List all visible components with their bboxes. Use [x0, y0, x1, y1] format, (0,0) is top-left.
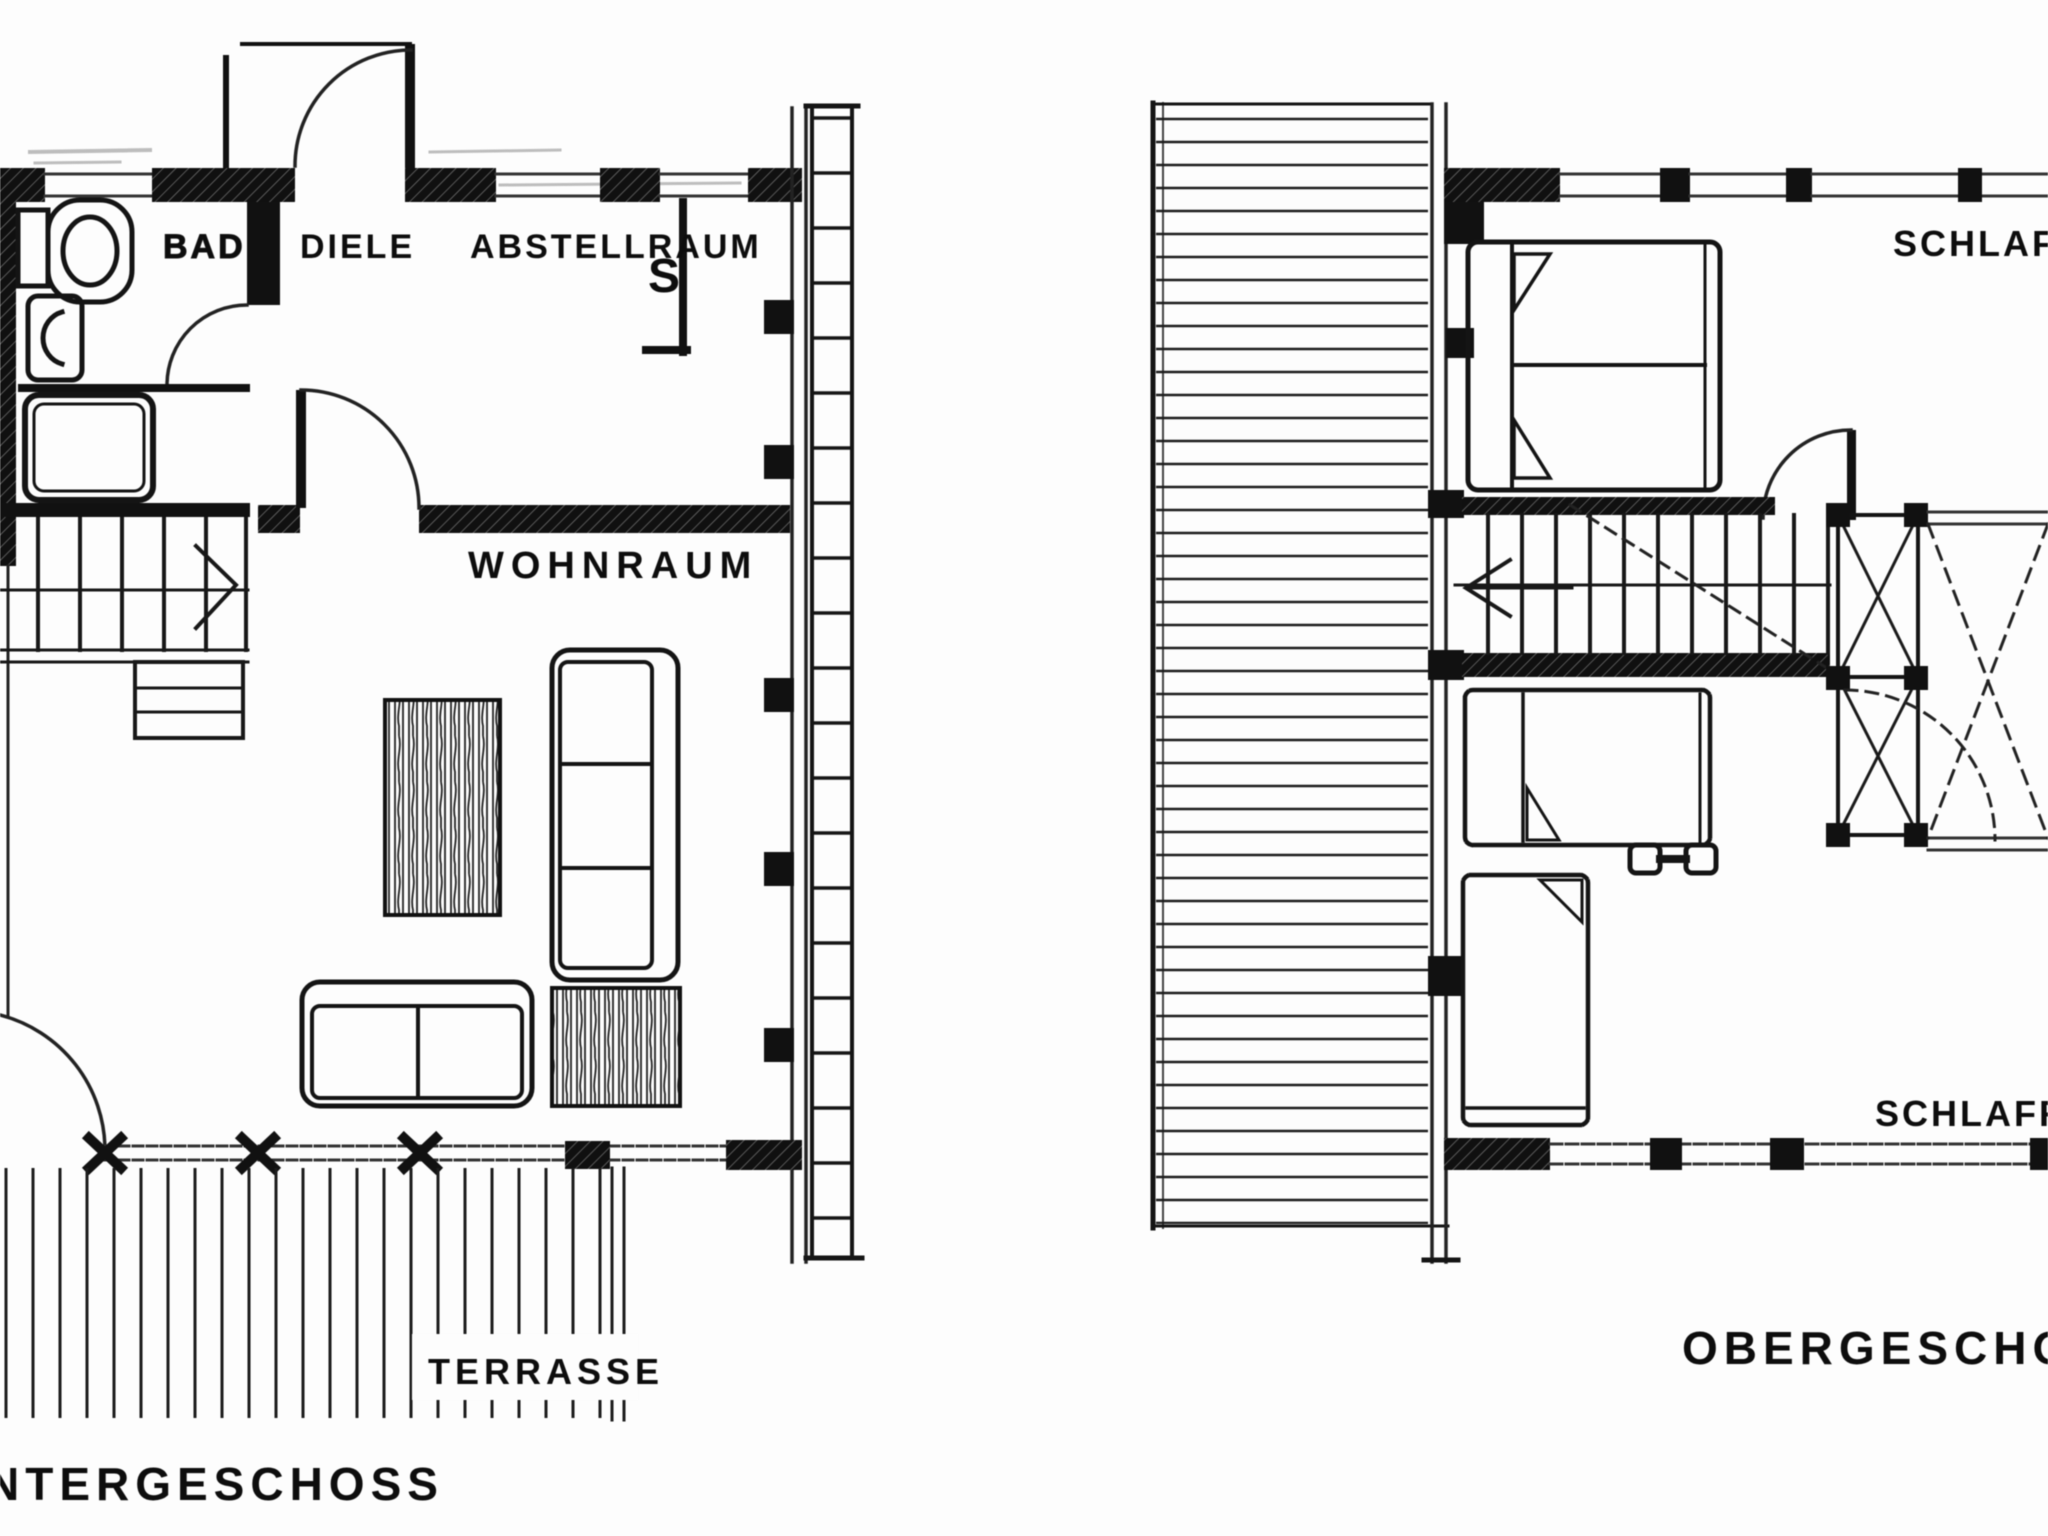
- bathroom: BAD: [18, 200, 280, 500]
- wall-post: [1958, 168, 1982, 202]
- terrace-door-arc: [0, 1015, 105, 1150]
- room-label-wohnraum: WOHNRAUM: [468, 545, 758, 587]
- doorway-stub: [258, 505, 300, 533]
- staircase: [0, 503, 250, 738]
- wall-post: [1786, 168, 1812, 202]
- upper-top-wall: [1444, 168, 2048, 202]
- double-bed: [1468, 242, 1720, 490]
- stair-landing: [135, 662, 243, 738]
- headroom-dashed-line: [1570, 505, 1830, 670]
- living-room-door-arc: [301, 390, 419, 508]
- lower-floor-caption: NTERGESCHOSS: [0, 1458, 444, 1510]
- wall-segment: [1444, 1138, 1550, 1170]
- glazed-wall: [105, 1146, 795, 1160]
- side-table-wood: [552, 988, 680, 1106]
- room-label-schlafraum-top: SCHLAFR: [1893, 223, 2048, 264]
- wall-segment: [565, 1141, 610, 1169]
- upper-left-wall: [1424, 104, 1484, 1262]
- stair-wall-upper: [1462, 497, 1775, 515]
- pillow-fold: [1540, 880, 1582, 922]
- wall-post: [1770, 1138, 1804, 1170]
- toilet-bowl-inner: [63, 217, 117, 285]
- room-label-bad: BAD: [163, 228, 246, 266]
- wall-post-x: [404, 1138, 436, 1168]
- upper-bottom-wall: [1444, 1138, 2048, 1170]
- hallway: DIELE S: [300, 202, 687, 352]
- single-bed-horizontal: [1465, 690, 1710, 845]
- pillow-fold: [1514, 254, 1550, 310]
- single-bed-vertical: [1463, 875, 1588, 1125]
- wall-post-x: [242, 1138, 274, 1168]
- wall-junction-stubs: [764, 300, 794, 1062]
- room-label-terrasse: TERRASSE: [428, 1351, 664, 1392]
- living-room-door-leaf: [296, 390, 306, 508]
- room-label-diele: DIELE: [300, 228, 415, 266]
- living-room-wall: [419, 505, 790, 533]
- entry-door-leaf: [405, 44, 415, 168]
- upper-floor-plan: SCHLAFR: [1152, 103, 2048, 1374]
- wall-post: [2030, 1138, 2048, 1170]
- chimney-shaft: [1826, 503, 2048, 850]
- window-segment: [1690, 174, 1786, 196]
- stair-direction-arrow: [196, 546, 236, 628]
- room-label-abstellraum: ABSTELLRAUM: [470, 228, 762, 266]
- roof-hatch-strip: [1152, 103, 1448, 1228]
- bench: [1630, 845, 1716, 873]
- coffee-table-wood: [385, 700, 500, 915]
- wall-segment: [1444, 168, 1560, 202]
- window-segment: [1560, 174, 1660, 196]
- sink-basin: [28, 296, 82, 380]
- right-wall-and-ladder: [764, 106, 862, 1262]
- window-segment: [1812, 174, 2048, 196]
- lower-floor-plan: BAD DIELE S ABSTELLRAUM WOHNRAUM: [0, 44, 862, 1510]
- bedroom-top: SCHLAFR: [1468, 223, 2048, 520]
- bathroom-bottom-wall: [18, 384, 250, 392]
- wall-segment: [405, 168, 496, 202]
- living-room: WOHNRAUM: [258, 390, 790, 1106]
- wall-segment: [152, 168, 295, 202]
- pillow-fold: [1514, 420, 1550, 478]
- window-segment: [45, 174, 152, 196]
- wall-segment: [600, 168, 660, 202]
- extension-x-bracing: [1928, 524, 2048, 838]
- upper-floor-caption: OBERGESCHOSS: [1682, 1322, 2048, 1374]
- sofa-vertical: [552, 650, 678, 980]
- storage-room: ABSTELLRAUM: [470, 228, 762, 266]
- floor-plan-sheet: BAD DIELE S ABSTELLRAUM WOHNRAUM: [0, 0, 2048, 1536]
- entry-porch: [226, 44, 415, 168]
- wall-segment: [748, 168, 802, 202]
- strip-hatching: [1156, 108, 1428, 1224]
- wall-post: [1650, 1138, 1682, 1170]
- sink-bowl: [43, 312, 62, 364]
- entry-door-swing-arc: [295, 50, 411, 166]
- bathroom-door-arc: [167, 305, 247, 385]
- pillow-fold: [1527, 788, 1559, 840]
- wall-post: [1660, 168, 1690, 202]
- wall-segment: [726, 1140, 802, 1170]
- shower-tub-inner: [34, 404, 144, 491]
- ladder-rungs: [812, 106, 852, 1258]
- floor-plan-drawing: BAD DIELE S ABSTELLRAUM WOHNRAUM: [0, 0, 2048, 1536]
- stair-top-wall: [0, 503, 250, 517]
- stair-treads: [38, 519, 246, 650]
- stair-wall-lower: [1462, 653, 1830, 677]
- sofa-horizontal: [302, 982, 532, 1106]
- shower-tub-outer: [25, 395, 153, 500]
- bathroom-partition-wall: [247, 202, 280, 305]
- upper-staircase: [1455, 497, 1830, 677]
- room-label-schlafraum-bottom: SCHLAFR: [1875, 1093, 2048, 1134]
- toilet-tank: [18, 210, 48, 286]
